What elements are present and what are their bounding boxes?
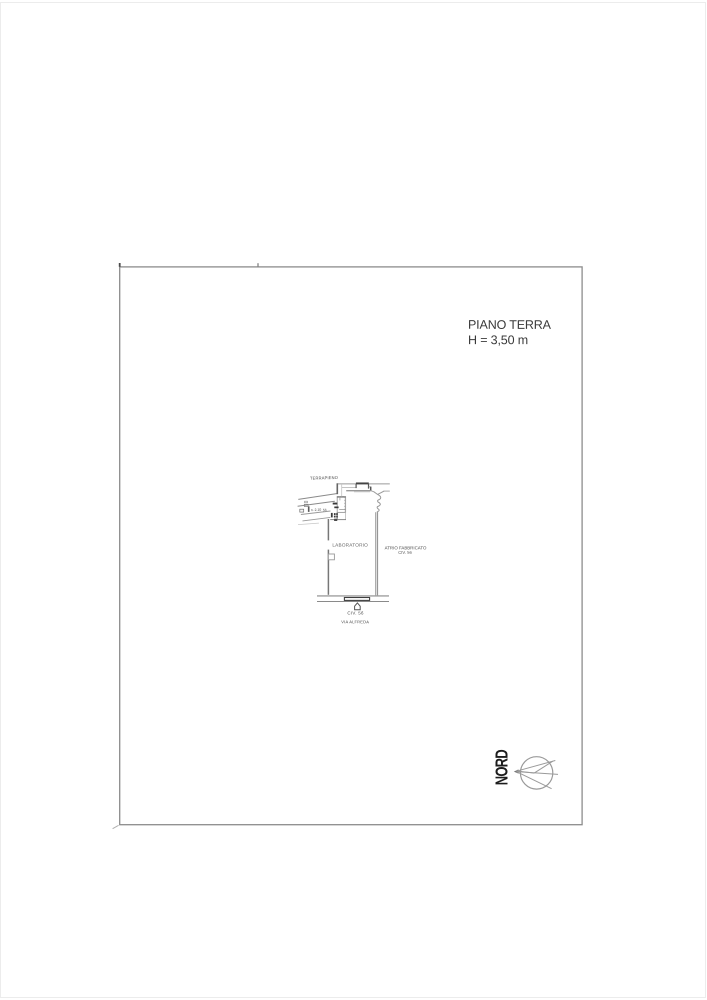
svg-text:56: 56 [323, 508, 327, 512]
svg-text:n. 2,10: n. 2,10 [311, 508, 322, 512]
svg-text:VIA ALFREDA: VIA ALFREDA [341, 619, 369, 624]
svg-text:NORD: NORD [493, 749, 512, 785]
svg-text:CIV. 56: CIV. 56 [347, 610, 364, 615]
svg-text:PIANO TERRA: PIANO TERRA [468, 318, 552, 332]
svg-text:TERRAPIENO: TERRAPIENO [310, 475, 338, 481]
svg-text:CIV. 56: CIV. 56 [398, 550, 412, 555]
svg-text:LABORATORIO: LABORATORIO [332, 543, 368, 548]
svg-text:H = 3,50 m: H = 3,50 m [468, 333, 528, 347]
